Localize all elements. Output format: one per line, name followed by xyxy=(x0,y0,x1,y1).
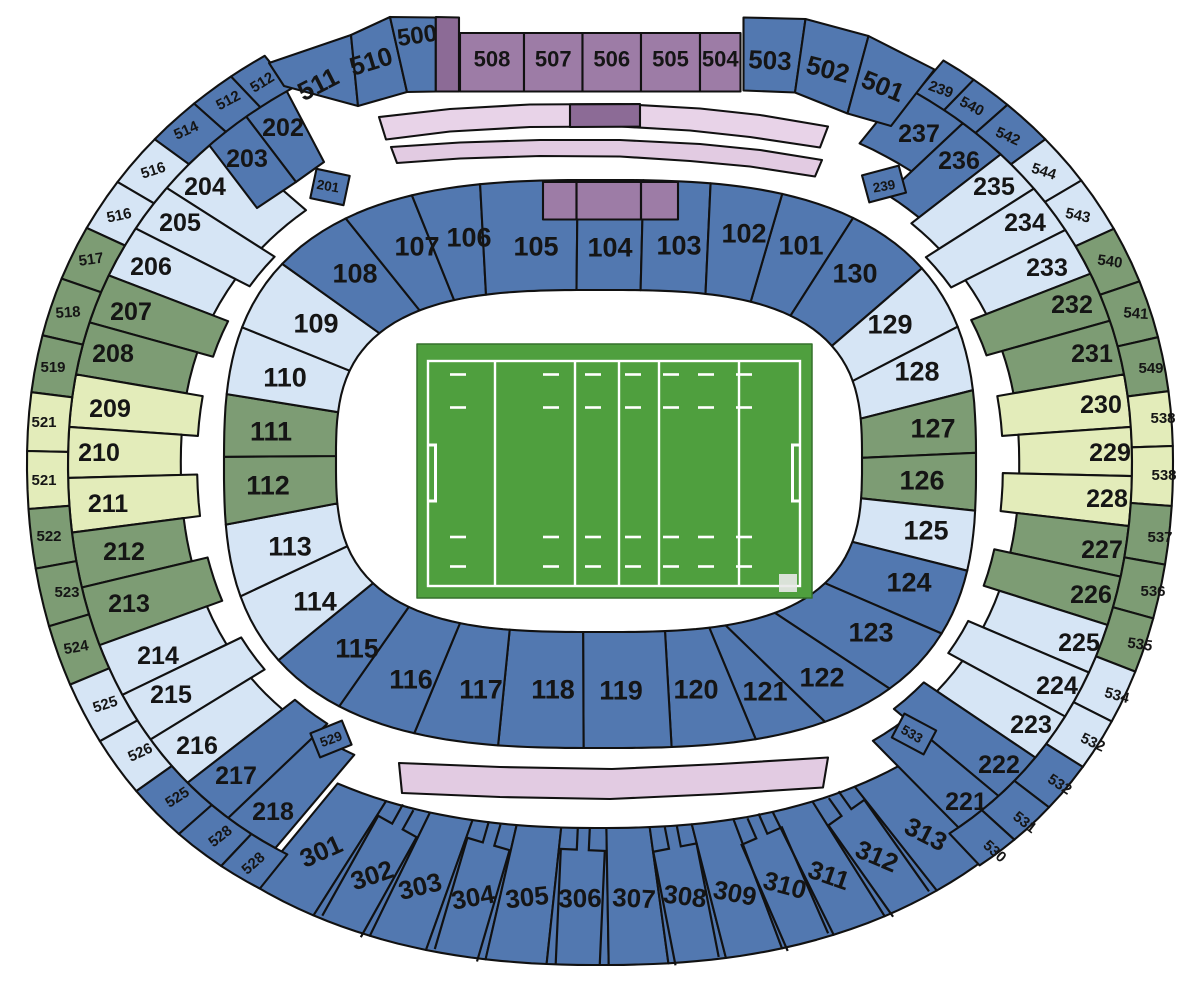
svg-text:522: 522 xyxy=(36,528,61,545)
svg-text:211: 211 xyxy=(88,490,128,518)
svg-text:549: 549 xyxy=(1138,360,1163,377)
svg-text:233: 233 xyxy=(1026,254,1068,282)
svg-text:224: 224 xyxy=(1036,672,1078,700)
svg-text:507: 507 xyxy=(535,47,572,72)
svg-text:225: 225 xyxy=(1058,629,1100,657)
svg-text:113: 113 xyxy=(268,532,312,562)
svg-text:518: 518 xyxy=(55,303,81,322)
svg-text:305: 305 xyxy=(504,880,550,914)
svg-text:112: 112 xyxy=(246,470,290,500)
svg-text:204: 204 xyxy=(184,173,226,201)
svg-text:237: 237 xyxy=(898,120,940,148)
svg-text:307: 307 xyxy=(612,882,657,914)
svg-text:306: 306 xyxy=(558,883,602,914)
svg-text:227: 227 xyxy=(1081,536,1123,564)
svg-text:130: 130 xyxy=(832,258,877,288)
svg-text:506: 506 xyxy=(593,47,630,72)
svg-text:217: 217 xyxy=(215,762,257,790)
svg-text:216: 216 xyxy=(176,732,218,760)
svg-text:128: 128 xyxy=(894,356,939,386)
svg-text:500: 500 xyxy=(395,20,438,52)
svg-text:504: 504 xyxy=(702,47,739,72)
svg-text:503: 503 xyxy=(748,44,793,76)
svg-text:228: 228 xyxy=(1086,485,1128,513)
svg-text:210: 210 xyxy=(78,439,120,467)
svg-text:117: 117 xyxy=(459,675,503,705)
svg-text:101: 101 xyxy=(778,230,823,260)
svg-text:235: 235 xyxy=(973,173,1015,201)
svg-text:122: 122 xyxy=(799,663,844,693)
svg-text:129: 129 xyxy=(867,309,912,339)
svg-text:212: 212 xyxy=(103,538,145,566)
svg-text:521: 521 xyxy=(31,472,56,489)
svg-text:111: 111 xyxy=(250,416,292,446)
svg-text:123: 123 xyxy=(848,618,893,648)
svg-text:541: 541 xyxy=(1123,304,1149,323)
svg-text:104: 104 xyxy=(587,232,632,262)
svg-text:517: 517 xyxy=(78,250,105,270)
svg-text:115: 115 xyxy=(335,634,379,664)
svg-text:205: 205 xyxy=(159,209,201,237)
svg-text:229: 229 xyxy=(1089,439,1131,467)
svg-text:203: 203 xyxy=(226,145,268,173)
svg-text:127: 127 xyxy=(910,413,955,443)
svg-text:206: 206 xyxy=(130,253,172,281)
svg-text:536: 536 xyxy=(1140,583,1165,600)
svg-text:231: 231 xyxy=(1071,340,1113,368)
svg-text:521: 521 xyxy=(31,414,56,431)
svg-text:226: 226 xyxy=(1070,581,1112,609)
svg-text:125: 125 xyxy=(903,516,948,546)
svg-text:126: 126 xyxy=(899,465,944,495)
svg-text:202: 202 xyxy=(262,114,304,142)
svg-text:230: 230 xyxy=(1080,391,1122,419)
svg-text:118: 118 xyxy=(531,675,575,705)
svg-text:110: 110 xyxy=(263,362,307,392)
svg-text:120: 120 xyxy=(673,675,718,705)
svg-text:215: 215 xyxy=(150,681,192,709)
svg-text:208: 208 xyxy=(92,340,134,368)
svg-text:107: 107 xyxy=(394,231,439,261)
svg-text:508: 508 xyxy=(474,47,511,72)
svg-text:213: 213 xyxy=(108,590,150,618)
svg-text:232: 232 xyxy=(1051,291,1093,319)
svg-text:537: 537 xyxy=(1147,529,1172,546)
svg-text:223: 223 xyxy=(1010,711,1052,739)
svg-text:209: 209 xyxy=(89,395,131,423)
svg-text:523: 523 xyxy=(54,584,79,601)
svg-text:109: 109 xyxy=(293,308,338,338)
svg-text:538: 538 xyxy=(1150,410,1175,427)
svg-text:222: 222 xyxy=(978,751,1020,779)
svg-text:116: 116 xyxy=(389,665,433,695)
svg-text:535: 535 xyxy=(1126,635,1153,655)
svg-text:538: 538 xyxy=(1151,467,1176,484)
svg-text:308: 308 xyxy=(662,879,709,914)
svg-text:119: 119 xyxy=(599,676,643,706)
svg-text:505: 505 xyxy=(652,47,689,72)
svg-text:519: 519 xyxy=(40,359,65,376)
svg-text:236: 236 xyxy=(938,147,980,175)
svg-text:102: 102 xyxy=(721,218,766,248)
svg-text:214: 214 xyxy=(137,642,179,670)
svg-text:121: 121 xyxy=(742,677,787,707)
svg-text:218: 218 xyxy=(252,798,294,826)
svg-text:207: 207 xyxy=(110,298,152,326)
svg-text:108: 108 xyxy=(332,258,377,288)
svg-text:234: 234 xyxy=(1004,209,1046,237)
svg-text:114: 114 xyxy=(293,587,337,617)
svg-text:105: 105 xyxy=(513,231,558,261)
svg-text:106: 106 xyxy=(446,222,491,252)
svg-text:124: 124 xyxy=(886,568,931,598)
svg-text:103: 103 xyxy=(656,230,701,260)
svg-text:540: 540 xyxy=(1096,252,1123,272)
